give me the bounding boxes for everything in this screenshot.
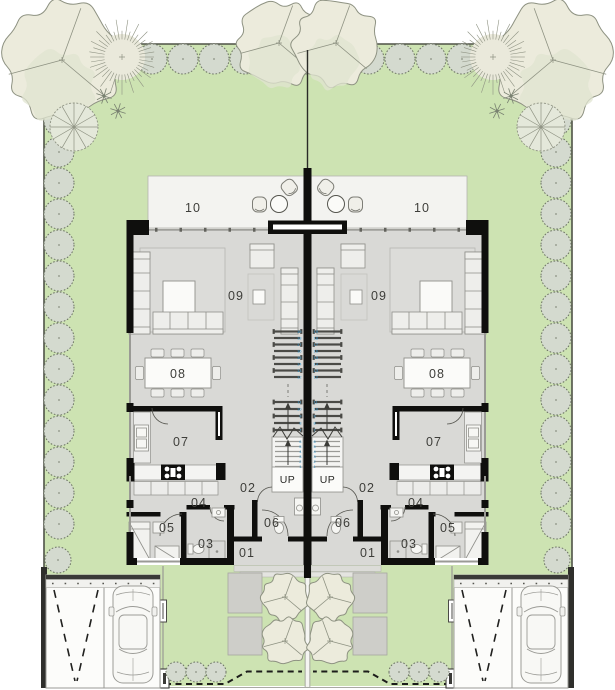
room-label-dining-right: 08 <box>429 367 445 381</box>
step-number: 12 <box>314 374 319 379</box>
room-label-kitchen-left: 07 <box>173 435 189 449</box>
step-number: 12 <box>297 374 302 379</box>
room-label-terrace-left: 10 <box>185 201 201 215</box>
step-number: 17 <box>297 342 302 347</box>
step-number: 10 <box>297 406 302 411</box>
palm-shrub-icon <box>50 103 98 151</box>
garage-left <box>46 575 160 688</box>
party-wall <box>304 234 312 565</box>
step-number: 15 <box>297 355 302 360</box>
party-wall-stub <box>304 565 311 578</box>
armchair-icon <box>250 244 274 268</box>
room-label-wc-left: 06 <box>264 516 280 530</box>
room-label-bedroom-right: 05 <box>440 521 456 535</box>
room-label-terrace-right: 10 <box>414 201 430 215</box>
step-number: 16 <box>314 348 319 353</box>
kitchen-sink-icon <box>135 425 149 451</box>
room-label-corridor-right: 04 <box>408 496 424 510</box>
step-number: 14 <box>297 361 302 366</box>
room-label-bath-left: 03 <box>198 537 214 551</box>
room-label-living-right: 09 <box>371 289 387 303</box>
stove-icon <box>161 465 185 481</box>
room-label-living-left: 09 <box>228 289 244 303</box>
site-plan-page: 1122334455667788991010111112121313141415… <box>0 0 615 690</box>
room-label-hall-left: 02 <box>240 481 256 495</box>
room-label-kitchen-right: 07 <box>426 435 442 449</box>
stairs-up-label-left: UP <box>280 474 296 486</box>
coffee-table-icon <box>163 281 195 313</box>
room-label-dining-left: 08 <box>170 367 186 381</box>
step-number: 13 <box>297 368 302 373</box>
step-number: 17 <box>314 342 319 347</box>
terrace-chair-icon <box>253 197 267 212</box>
step-number: 18 <box>314 335 319 340</box>
step-number: 19 <box>297 329 302 334</box>
step-number: 16 <box>297 348 302 353</box>
garage-right <box>454 575 568 688</box>
terrace-table-icon <box>271 196 288 213</box>
site-plan-drawing: 1122334455667788991010111112121313141415… <box>0 0 615 690</box>
sofa-side-icon <box>281 268 298 334</box>
step-number: 19 <box>314 329 319 334</box>
step-number: 18 <box>297 335 302 340</box>
step-number: 10 <box>314 406 319 411</box>
step-number: 13 <box>314 368 319 373</box>
room-label-hall-right: 02 <box>359 481 375 495</box>
side-gate <box>160 600 167 622</box>
sofa-bottom-icon <box>153 312 223 334</box>
step-number: 15 <box>314 355 319 360</box>
room-label-wc-right: 06 <box>335 516 351 530</box>
room-label-bath-right: 03 <box>401 537 417 551</box>
room-label-corridor-left: 04 <box>191 496 207 510</box>
stairs-up-label-right: UP <box>320 474 336 486</box>
step-number: 14 <box>314 361 319 366</box>
room-label-entrance-left: 01 <box>239 546 255 560</box>
room-label-bedroom-left: 05 <box>159 521 175 535</box>
side-table-icon <box>253 290 265 304</box>
room-label-entrance-right: 01 <box>360 546 376 560</box>
party-wall-upper <box>304 168 312 222</box>
